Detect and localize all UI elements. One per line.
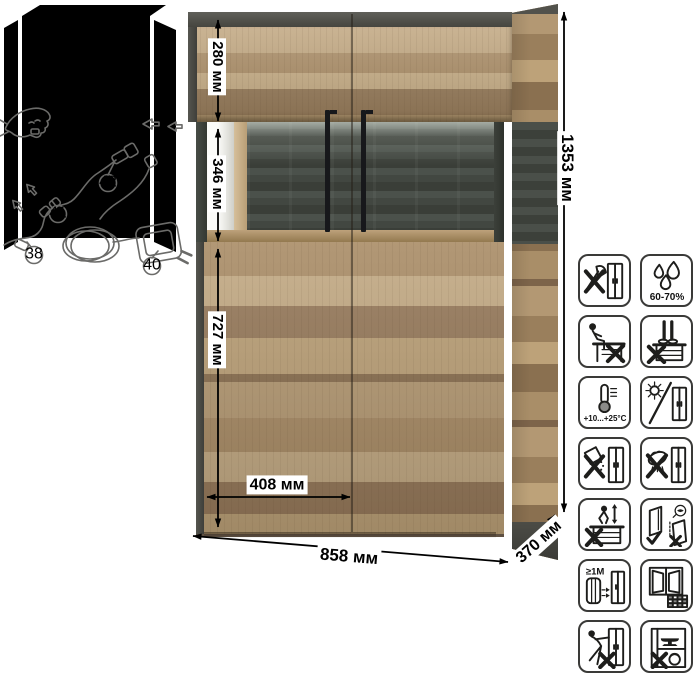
- cabinet-plinth-shadow: [204, 532, 496, 538]
- cabinet-top-panel: [188, 12, 512, 27]
- cabinet-lower-doors: [196, 242, 504, 537]
- thermometer-icon: [599, 384, 616, 411]
- floor-tiles-icon: [667, 595, 686, 606]
- svg-text:41: 41: [49, 205, 67, 222]
- jumping-child-icon: [599, 505, 608, 522]
- prohibition-x-icon: [652, 653, 665, 666]
- up-down-arrow-icon: [611, 503, 616, 523]
- wardrobe-icon: [608, 447, 622, 481]
- dim-total-height: 1353 мм: [557, 131, 577, 205]
- product-spec-sheet: 280 мм 346 мм 727 мм 408 мм 858 мм 370 м…: [0, 0, 700, 678]
- vitrine-left-frame: [196, 122, 207, 242]
- icon-ventilated-room: [640, 559, 693, 612]
- icon-no-children-jumping: [578, 498, 631, 551]
- insert-arrow-icon: [143, 119, 159, 129]
- cabinet-top-face: [22, 5, 166, 16]
- icon-transport-upright: [640, 498, 693, 551]
- dim-door-width: 408 мм: [247, 475, 308, 494]
- wardrobe-icon: [607, 263, 621, 297]
- side-top-edge: [512, 4, 558, 14]
- wardrobe-icon: [611, 571, 623, 603]
- inspect-icon: [673, 505, 685, 517]
- svg-text:42: 42: [99, 174, 117, 191]
- door-seam: [351, 14, 353, 532]
- side-glass-panel: [512, 122, 558, 244]
- cable-connector-42: [110, 142, 139, 165]
- standing-legs-icon: [658, 321, 676, 343]
- icon-temperature-range: +10...+25°C: [578, 376, 631, 429]
- vitrine-back-panel-led: [247, 122, 494, 242]
- icon-no-sitting: [578, 315, 631, 368]
- icon-no-abrasive-cleaners: [578, 437, 631, 490]
- svg-text:kg: kg: [78, 45, 95, 62]
- distance-label: ≥1M: [585, 566, 604, 577]
- cabinet-upper-doors: [188, 27, 512, 122]
- dim-lower-section-height: 727 мм: [208, 311, 226, 368]
- door-handle-right: [361, 110, 366, 232]
- door-handle-left: [325, 110, 330, 232]
- wardrobe-icon: [672, 387, 685, 420]
- icon-no-standing: [640, 315, 693, 368]
- dim-vitrine-height: 346 мм: [208, 155, 226, 212]
- cabinet-side-panel: [512, 4, 558, 560]
- prohibition-x-icon: [647, 455, 665, 476]
- wardrobe-icon: [671, 447, 684, 481]
- vitrine-side-wall: [234, 122, 247, 242]
- icon-humidity: 60-70%: [640, 254, 693, 307]
- led-wiring-diagram: 42 41 38 40: [0, 95, 195, 290]
- distance-arrows-icon: [602, 587, 610, 597]
- wardrobe-icon: [608, 628, 622, 664]
- prohibition-x-icon: [600, 653, 613, 666]
- insert-arrow-icon: [24, 182, 39, 197]
- radiator-icon: [586, 578, 599, 603]
- icon-no-dragging: [578, 620, 631, 673]
- vitrine-right-frame: [494, 122, 504, 242]
- cable-coil: [63, 227, 119, 262]
- svg-text:40: 40: [143, 257, 161, 274]
- hand-icon: [0, 108, 50, 137]
- icon-no-sharp-tools: [578, 254, 631, 307]
- water-drops-icon: [654, 261, 678, 288]
- icon-no-overloading: [640, 620, 693, 673]
- anvil-icon: [660, 638, 678, 646]
- icon-avoid-sunlight: [640, 376, 693, 429]
- icon-keep-distance-from-heat: ≥1M: [578, 559, 631, 612]
- icon-no-wet-cleaning: [640, 437, 693, 490]
- cabinet-vitrine-section: [196, 122, 504, 242]
- prohibition-x-icon: [585, 271, 602, 291]
- dim-top-section-height: 280 мм: [208, 38, 226, 95]
- insert-arrow-icon: [168, 122, 182, 131]
- care-icon-grid: 60-70% +10...+25°C: [578, 254, 693, 673]
- dim-total-width: 858 мм: [316, 544, 382, 569]
- kettlebell-icon: [669, 653, 680, 664]
- tilted-door-icon: [669, 520, 685, 545]
- temperature-range-label: +10...+25°C: [583, 414, 626, 423]
- open-window-icon: [649, 567, 682, 594]
- insert-arrow-icon: [10, 198, 25, 213]
- humidity-range-label: 60-70%: [649, 292, 684, 303]
- prohibition-x-icon: [585, 456, 602, 476]
- slash-icon: [649, 382, 670, 422]
- svg-text:38: 38: [25, 246, 43, 263]
- cabinet-left-trim-bottom: [196, 242, 204, 534]
- sun-icon: [645, 381, 662, 398]
